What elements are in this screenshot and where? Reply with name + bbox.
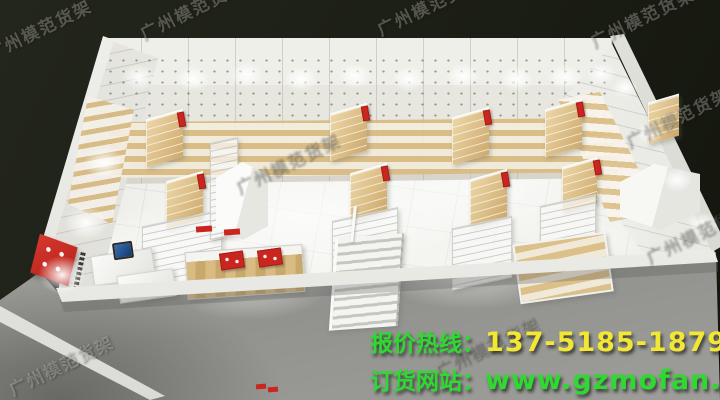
- website-url: www.gzmofan.com: [485, 365, 720, 396]
- red-shelf-strip: [268, 387, 278, 393]
- spotlight-glow: [64, 206, 108, 240]
- spotlight-glow: [84, 148, 124, 178]
- hotline-banner: 报价热线：137-5185-1879: [370, 329, 720, 356]
- spotlight-glow: [122, 64, 156, 90]
- spotlight-glow: [284, 66, 318, 92]
- website-label: 订货网站：: [370, 369, 485, 395]
- watermark-text: 广州模范货架: [0, 0, 96, 65]
- spotlight-glow: [548, 64, 582, 90]
- spotlight-glow: [446, 63, 480, 89]
- spotlight-glow: [392, 66, 426, 92]
- spotlight-glow: [230, 62, 264, 88]
- red-promo-placard: [219, 250, 245, 270]
- website-banner: 订货网站：www.gzmofan.com: [370, 367, 720, 394]
- red-shelf-strip: [196, 225, 212, 232]
- spotlight-glow: [586, 62, 616, 86]
- red-shelf-strip: [256, 384, 266, 390]
- spotlight-glow: [662, 168, 692, 192]
- spotlight-glow: [38, 256, 86, 294]
- red-shelf-strip: [224, 228, 240, 235]
- watermark-text: 广州模范货架: [372, 0, 485, 41]
- spotlight-glow: [176, 66, 210, 92]
- spotlight-glow: [500, 66, 534, 92]
- hotline-label: 报价热线：: [370, 331, 485, 357]
- spotlight-glow: [612, 78, 638, 98]
- red-promo-placard: [257, 247, 283, 267]
- watermark-text: 广州模范货架: [585, 0, 698, 53]
- store-render-scene: 广州模范货架 广州模范货架 广州模范货架 广州模范货架 广州模范货架 广州模范货…: [0, 0, 720, 400]
- hotline-number: 137-5185-1879: [485, 327, 720, 358]
- spotlight-glow: [338, 63, 372, 89]
- cashier-monitor: [112, 241, 134, 261]
